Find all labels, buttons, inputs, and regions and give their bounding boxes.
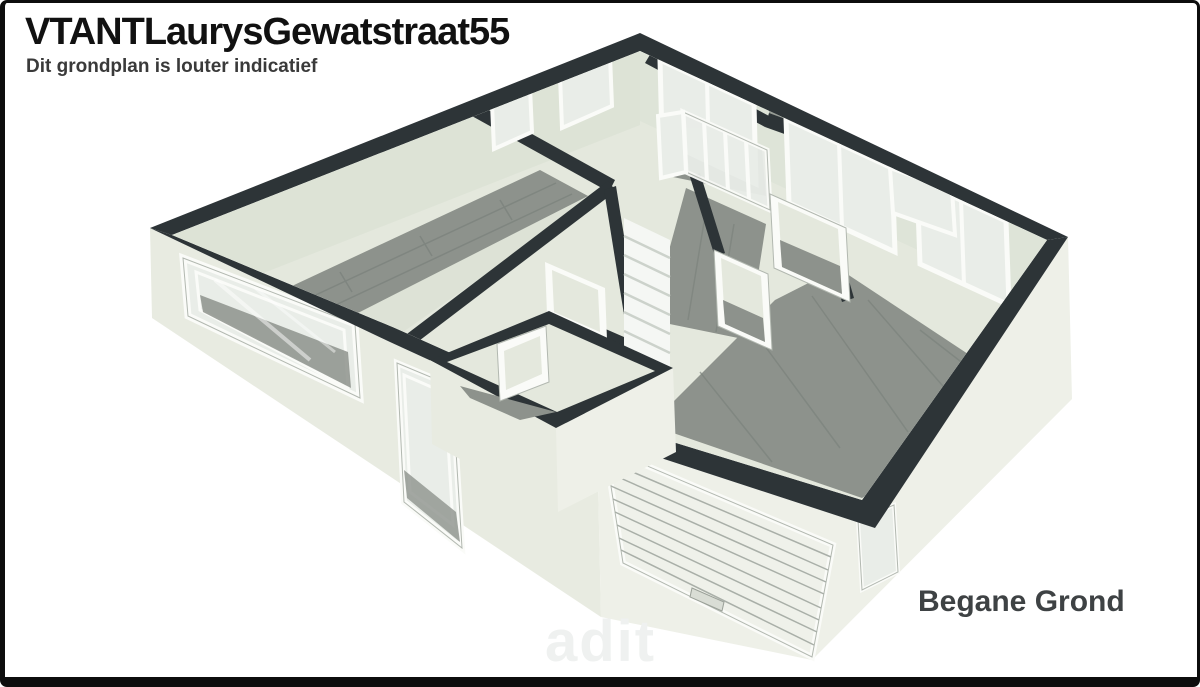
page-title: VTANTLaurysGewatstraat55 — [25, 11, 509, 54]
wall-back-divider — [850, 44, 894, 146]
hall-glass-panel-left — [658, 112, 686, 178]
watermark: adit — [545, 608, 656, 675]
floor-label: Begane Grond — [918, 585, 1125, 619]
page-subtitle: Dit grondplan is louter indicatief — [26, 56, 317, 78]
page: adit VTANTLaurysGewatstraat55 Dit grondp… — [0, 0, 1200, 687]
floorplan-3d — [0, 0, 1200, 687]
